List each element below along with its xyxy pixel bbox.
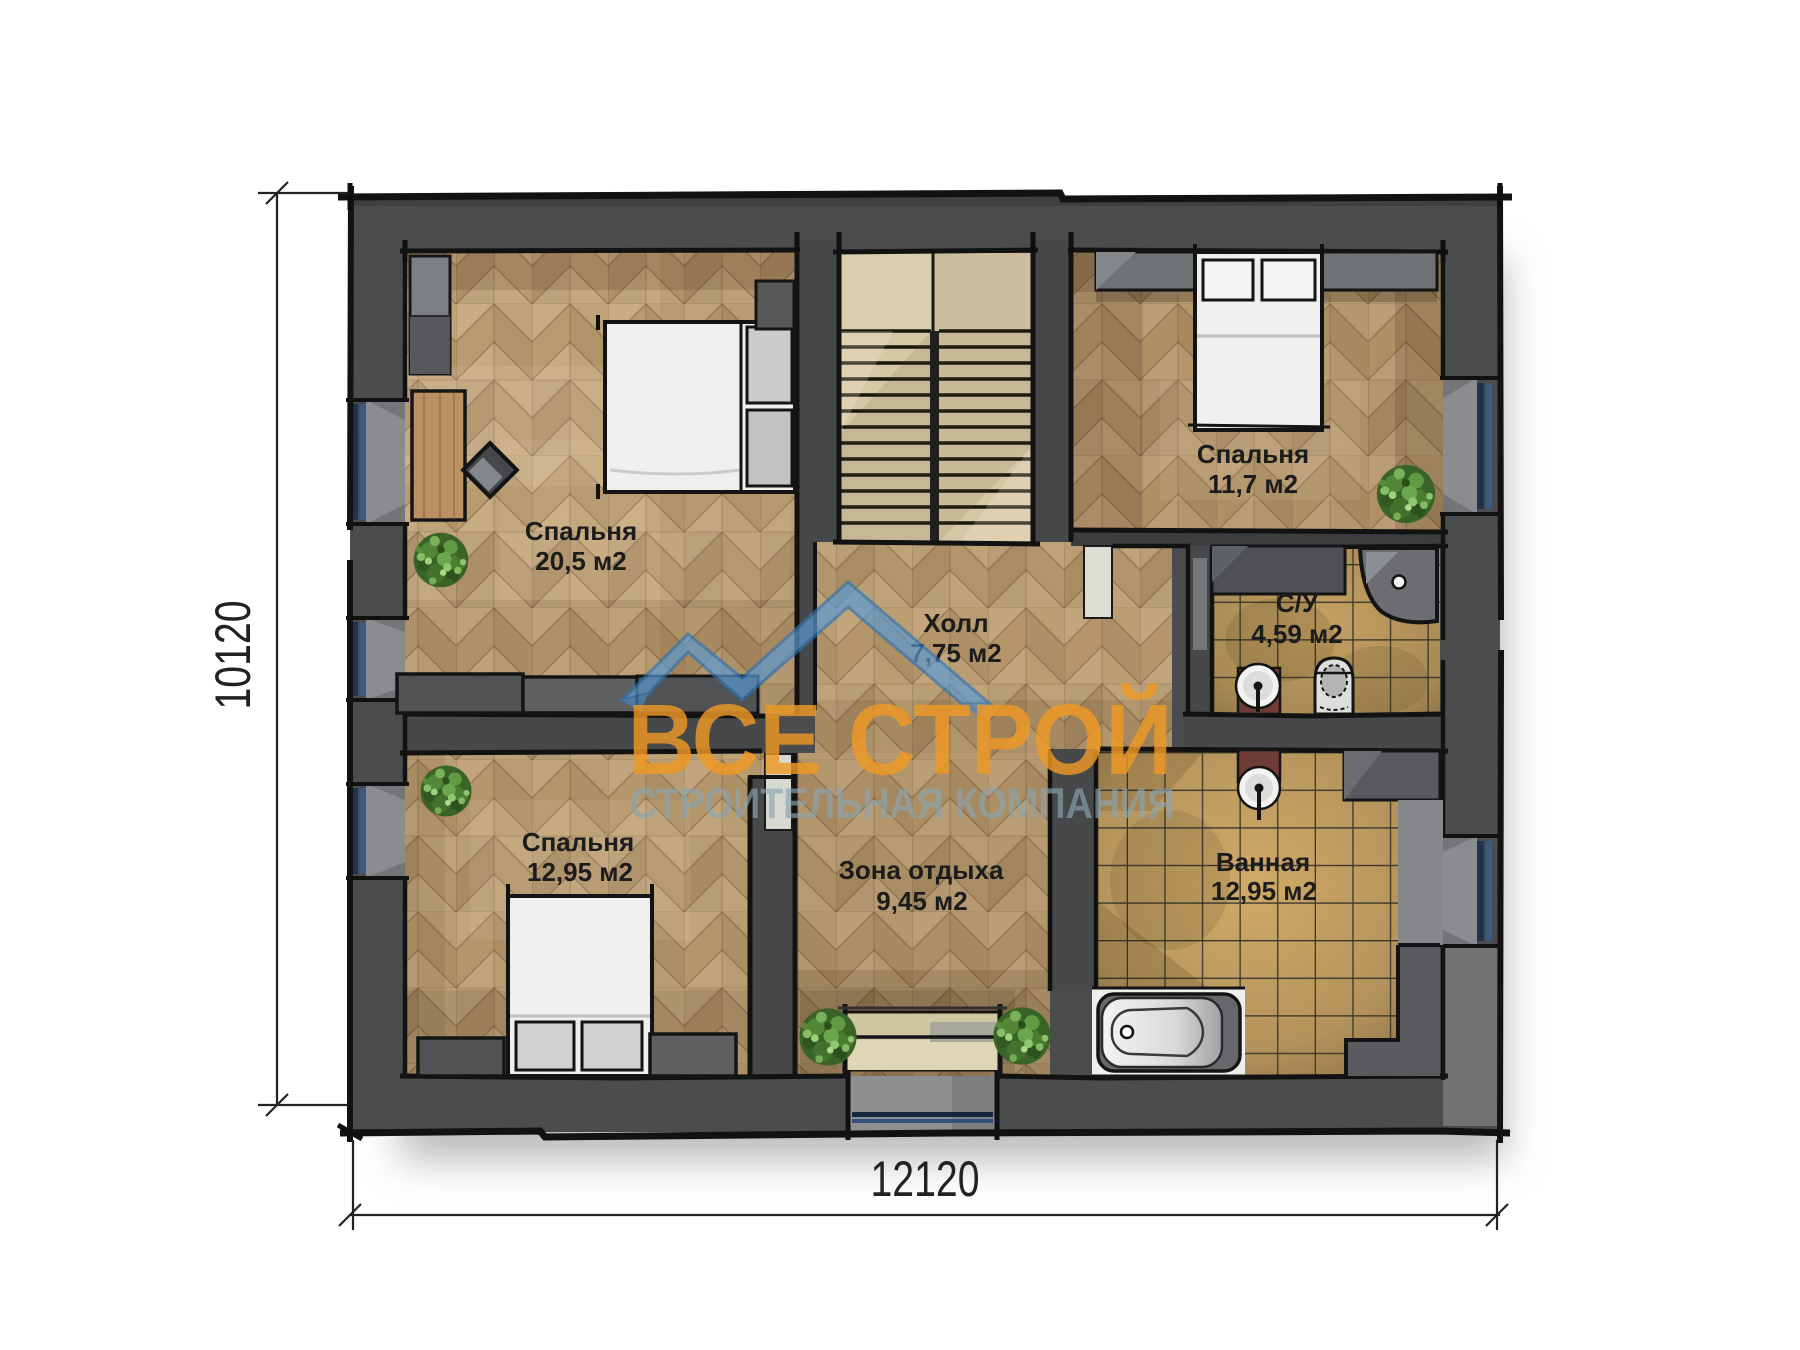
svg-text:20,5 м2: 20,5 м2 <box>535 546 627 576</box>
svg-text:Спальня: Спальня <box>522 827 634 857</box>
svg-text:Спальня: Спальня <box>1197 439 1309 469</box>
svg-text:Холл: Холл <box>923 608 988 638</box>
svg-text:11,7 м2: 11,7 м2 <box>1208 469 1298 499</box>
svg-text:С/У: С/У <box>1276 588 1319 618</box>
svg-text:12,95 м2: 12,95 м2 <box>1211 876 1317 906</box>
svg-text:12120: 12120 <box>871 1151 980 1207</box>
svg-text:12,95 м2: 12,95 м2 <box>527 857 633 887</box>
svg-text:Ванная: Ванная <box>1216 847 1310 877</box>
svg-text:9,45 м2: 9,45 м2 <box>876 886 968 916</box>
svg-text:10120: 10120 <box>205 601 261 710</box>
svg-text:4,59 м2: 4,59 м2 <box>1251 619 1343 649</box>
svg-text:Зона отдыха: Зона отдыха <box>839 855 1004 885</box>
svg-text:СТРОИТЕЛЬНАЯ КОМПАНИЯ: СТРОИТЕЛЬНАЯ КОМПАНИЯ <box>630 780 1175 828</box>
svg-text:Спальня: Спальня <box>525 516 637 546</box>
